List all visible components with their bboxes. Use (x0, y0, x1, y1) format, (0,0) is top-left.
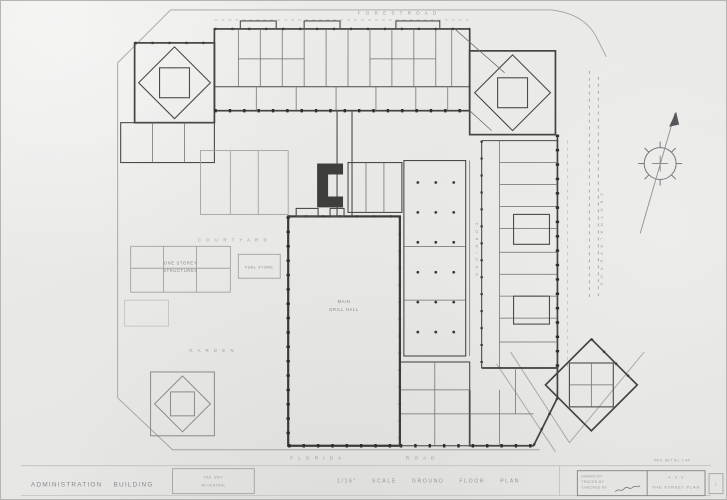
hall-piers-top-right (288, 216, 400, 445)
title-block-row3: CHECKED BY (581, 486, 607, 490)
north-axis-line (640, 113, 675, 234)
signature-scribble (615, 486, 640, 492)
south-wing (400, 362, 534, 446)
scanned-drawing-page: MAIN DRILL HALL C O R R I D O R C O U R … (0, 0, 727, 500)
areaway-dashes (214, 20, 567, 368)
north-wing-outline (214, 29, 469, 111)
north-partitions-lower (256, 87, 447, 111)
north-arrow (638, 112, 682, 234)
site-boundary (118, 10, 645, 452)
boundary-south (118, 398, 540, 450)
north-court-structures (200, 151, 288, 215)
boundary-ne-curve (551, 10, 606, 57)
west-court-structures: C O U R T Y A R D ONE STOREY STRUCTURES … (125, 237, 281, 353)
garden-label: G A R D E N (189, 348, 235, 353)
courtyard-label: C O U R T Y A R D (198, 237, 269, 242)
scale-caption: 1/16" SCALE GROUND FLOOR PLAN (337, 479, 520, 485)
nw-pavilion-core (160, 68, 190, 98)
southeast-corner-wing (470, 368, 558, 446)
hall-top-rooms (348, 163, 402, 213)
corridor-label: C O R R I D O R (475, 223, 479, 278)
stamp-line1: CAP. UNIT (203, 476, 223, 480)
columned-hall: C O R R I D O R (348, 161, 479, 356)
nw-pavilion-outline (135, 43, 215, 123)
hall-outline (288, 216, 400, 445)
east-room-b (514, 296, 550, 324)
se-pavilion-partitions (569, 363, 613, 407)
bottom-street-name: F L O R I D A (290, 456, 343, 461)
northwest-pavilion (121, 43, 215, 163)
stamp-box (173, 469, 255, 494)
bottom-street-suffix: R O A D (406, 456, 437, 461)
stamp-line2: 4B CENTRAL (201, 484, 226, 488)
hall-piers-left-bottom (288, 216, 400, 445)
title-block-marks: - 4 - 5 - 3 - (666, 476, 687, 480)
se-corner-partitions (470, 368, 534, 446)
east-wing (482, 135, 558, 368)
se-corner-outline (470, 368, 558, 446)
column-grid (416, 181, 455, 333)
sw-pavilion-diamond (155, 376, 211, 432)
store-label: FUEL STORE (245, 265, 273, 269)
north-bay-1 (240, 21, 276, 29)
title-block-note: REV. SET No. 7-44 (654, 459, 690, 463)
title-block-title: THE STREET PLAN (652, 485, 700, 490)
east-end-walls (482, 141, 558, 368)
north-partitions-upper (238, 29, 451, 87)
ne-pavilion-diamond (475, 55, 551, 131)
court-shed-north (200, 151, 288, 215)
hall-label-line1: MAIN (338, 299, 351, 304)
top-street-label: F O R E S T R O A D (358, 10, 438, 15)
small-yard-structure (125, 300, 169, 326)
north-arrowhead-icon (669, 112, 679, 127)
sheet-number: 1 (715, 483, 717, 487)
nw-pavilion-diamond (139, 47, 211, 119)
hall-label-line2: DRILL HALL (329, 307, 358, 312)
columned-hall-partitions (366, 161, 470, 356)
right-street-label: C E N T R A L A V E N U E (599, 193, 603, 287)
sw-pavilion-core (171, 392, 195, 416)
c-block (317, 164, 343, 208)
columned-hall-outline (404, 161, 466, 356)
central-hall: MAIN DRILL HALL (288, 208, 400, 445)
nw-annex-partitions (153, 123, 185, 163)
court-shed-north-partitions (230, 151, 258, 215)
shed-label-line2: STRUCTURES (163, 268, 198, 273)
south-wing-partitions (400, 362, 470, 446)
southwest-pavilion (151, 372, 215, 436)
east-room-a (514, 214, 550, 244)
floor-plan-drawing: MAIN DRILL HALL C O R R I D O R C O U R … (1, 1, 726, 500)
title-block: REV. SET No. 7-44 DRAWN BY TRACED BY CHE… (577, 459, 723, 496)
north-wing (214, 21, 469, 111)
title-block-row1: DRAWN BY (581, 475, 603, 479)
c-block-shape (317, 164, 343, 208)
sw-pavilion-outline (151, 372, 215, 436)
southeast-detached-pavilion (545, 339, 637, 431)
ne-pavilion-core (498, 78, 528, 108)
shed-label-line1: ONE STOREY (164, 260, 197, 265)
title-block-row2: TRACED BY (581, 480, 604, 484)
drawing-title: ADMINISTRATION BUILDING (31, 482, 154, 489)
east-partitions (500, 163, 558, 342)
